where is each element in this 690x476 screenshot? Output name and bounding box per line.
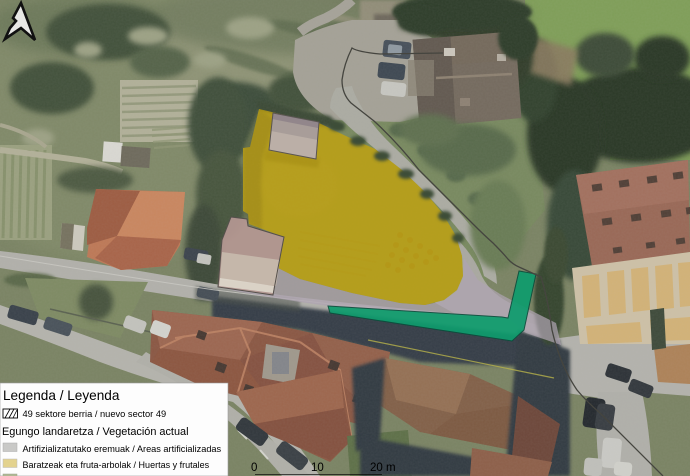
svg-text:20 m: 20 m (370, 462, 396, 474)
svg-text:Egungo landaretza / Vegetación: Egungo landaretza / Vegetación actual (2, 426, 189, 438)
svg-text:49 sektore berria / nuevo sect: 49 sektore berria / nuevo sector 49 (23, 409, 167, 419)
svg-text:Legenda / Leyenda: Legenda / Leyenda (3, 388, 120, 403)
svg-text:0: 0 (251, 462, 257, 474)
svg-text:Artifizializatutako eremuak /: Artifizializatutako eremuak / Areas arti… (23, 444, 222, 454)
svg-text:10: 10 (311, 462, 324, 474)
svg-text:Baratzeak eta fruta-arbolak /: Baratzeak eta fruta-arbolak / Huertas y … (23, 460, 210, 470)
